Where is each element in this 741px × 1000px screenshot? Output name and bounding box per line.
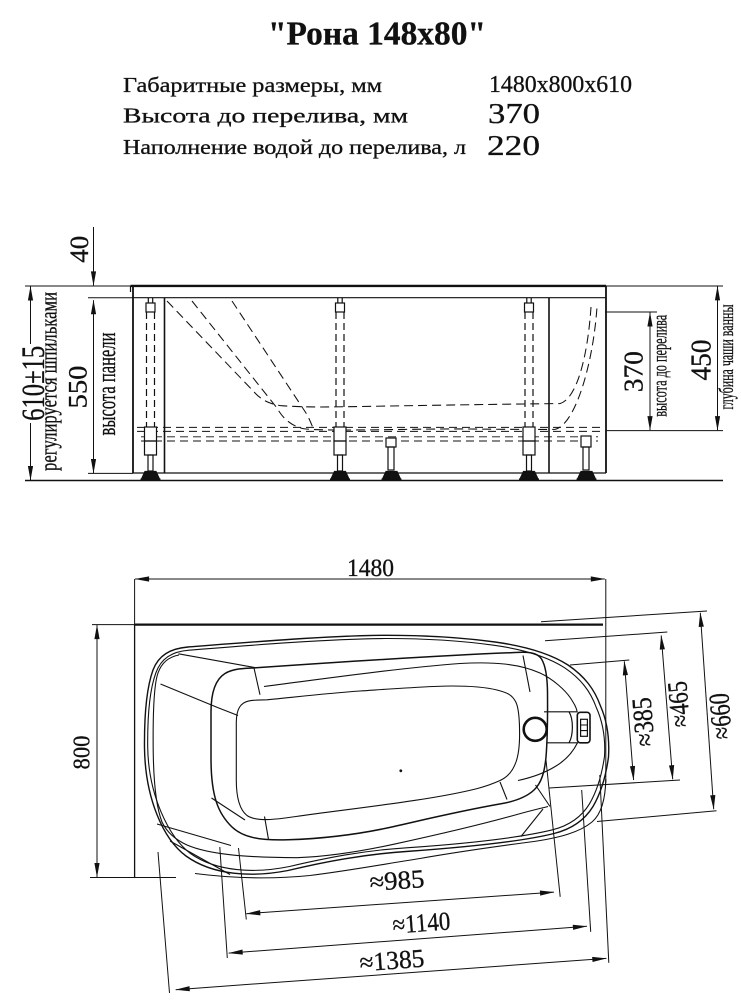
svg-text:"Рона 148x80": "Рона 148x80" (268, 16, 486, 53)
svg-text:регулируется шпильками: регулируется шпильками (37, 292, 63, 471)
svg-text:Высота до перелива, мм: Высота до перелива, мм (123, 104, 408, 128)
svg-text:40: 40 (65, 236, 94, 263)
svg-text:Габаритные размеры, мм: Габаритные размеры, мм (123, 73, 382, 97)
svg-text:≈385: ≈385 (627, 696, 662, 747)
svg-text:≈985: ≈985 (368, 864, 425, 897)
svg-text:Наполнение водой до перелива,: Наполнение водой до перелива, л (123, 135, 466, 159)
svg-text:370: 370 (488, 98, 540, 130)
svg-text:высота панели: высота панели (92, 332, 121, 435)
svg-text:550: 550 (64, 366, 93, 409)
svg-text:глубина чаши ванны: глубина чаши ванны (716, 305, 738, 410)
svg-text:1480: 1480 (347, 555, 394, 582)
svg-text:≈660: ≈660 (703, 692, 738, 740)
svg-text:1480x800x610: 1480x800x610 (489, 72, 632, 98)
svg-text:высота до перелива: высота до перелива (650, 315, 672, 417)
svg-text:≈465: ≈465 (662, 680, 697, 728)
svg-text:≈1140: ≈1140 (391, 906, 451, 939)
svg-text:220: 220 (487, 130, 540, 162)
svg-text:800: 800 (70, 736, 96, 770)
svg-text:370: 370 (618, 351, 648, 392)
svg-text:450: 450 (687, 340, 718, 381)
svg-text:≈1385: ≈1385 (358, 944, 425, 978)
